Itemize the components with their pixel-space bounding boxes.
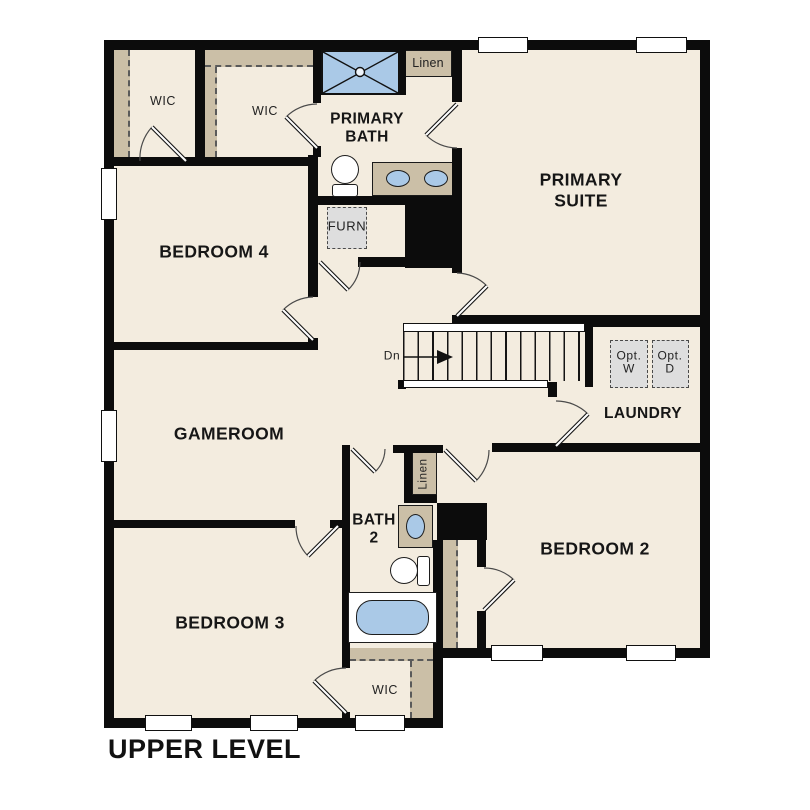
wall bbox=[104, 40, 114, 728]
plan-title: UPPER LEVEL bbox=[108, 734, 301, 765]
room-label-bath2: BATH 2 bbox=[352, 512, 396, 549]
room-label-bedroom4: BEDROOM 4 bbox=[159, 242, 269, 263]
room-label-laundry: LAUNDRY bbox=[604, 405, 682, 423]
room-label-primary-suite: PRIMARY SUITE bbox=[540, 169, 623, 210]
stair-rail-bottom bbox=[403, 380, 548, 388]
room-label-wic3: WIC bbox=[372, 683, 398, 697]
wall bbox=[477, 611, 486, 648]
window bbox=[355, 715, 405, 731]
bathtub bbox=[356, 600, 429, 635]
stair-treads bbox=[403, 331, 593, 381]
wall bbox=[308, 155, 318, 297]
wall bbox=[104, 520, 295, 528]
floor-plan: WIC WIC PRIMARY BATH Linen PRIMARY SUITE… bbox=[0, 0, 810, 810]
wall bbox=[477, 540, 486, 567]
window bbox=[145, 715, 192, 731]
room-label-gameroom: GAMEROOM bbox=[174, 424, 284, 445]
room-label-linen-primary: Linen bbox=[412, 56, 444, 70]
wall bbox=[330, 520, 346, 528]
wall bbox=[104, 40, 710, 50]
sink bbox=[424, 170, 448, 187]
chase bbox=[437, 503, 487, 540]
stair-rail-top bbox=[403, 323, 585, 332]
wic3-shelf-top bbox=[350, 648, 433, 661]
room-label-wic2: WIC bbox=[252, 104, 278, 118]
wall bbox=[700, 40, 710, 658]
room-label-primary-bath: PRIMARY BATH bbox=[330, 111, 404, 148]
wic1-shelf bbox=[114, 50, 130, 157]
wall bbox=[342, 712, 350, 728]
chase bbox=[405, 196, 462, 268]
room-label-bedroom2: BEDROOM 2 bbox=[540, 539, 650, 560]
wic2-shelf-top bbox=[205, 50, 313, 67]
wall bbox=[195, 50, 205, 157]
toilet-bowl bbox=[331, 155, 359, 184]
wall bbox=[104, 157, 318, 166]
window bbox=[636, 37, 687, 53]
window bbox=[101, 410, 117, 462]
window bbox=[491, 645, 543, 661]
window bbox=[101, 168, 117, 220]
sink bbox=[406, 514, 425, 539]
bedroom2-closet-shelf bbox=[443, 540, 458, 648]
room-label-linen-bath2: Linen bbox=[418, 458, 431, 489]
wic2-shelf-left bbox=[205, 67, 217, 157]
wall bbox=[400, 50, 406, 95]
wall bbox=[104, 342, 318, 350]
toilet-bowl bbox=[390, 557, 418, 584]
wic3-shelf-right bbox=[410, 661, 433, 718]
wall bbox=[318, 196, 405, 205]
wall bbox=[548, 382, 557, 397]
opt-washer-label: Opt. W bbox=[616, 350, 641, 377]
room-label-bedroom3: BEDROOM 3 bbox=[175, 613, 285, 634]
room-label-furnace: FURN bbox=[328, 220, 367, 235]
wall bbox=[492, 443, 710, 452]
window bbox=[250, 715, 298, 731]
wall bbox=[358, 257, 405, 267]
toilet-tank bbox=[332, 184, 358, 197]
shower bbox=[321, 50, 400, 95]
wall bbox=[393, 445, 443, 453]
wall bbox=[452, 40, 462, 102]
wall bbox=[404, 495, 437, 503]
opt-dryer-label: Opt. D bbox=[657, 350, 682, 377]
room-label-wic1: WIC bbox=[150, 94, 176, 108]
window bbox=[478, 37, 528, 53]
window bbox=[626, 645, 676, 661]
wall bbox=[313, 50, 321, 103]
toilet-tank bbox=[417, 556, 430, 586]
stairs-dn-label: Dn bbox=[384, 349, 401, 362]
sink bbox=[386, 170, 410, 187]
